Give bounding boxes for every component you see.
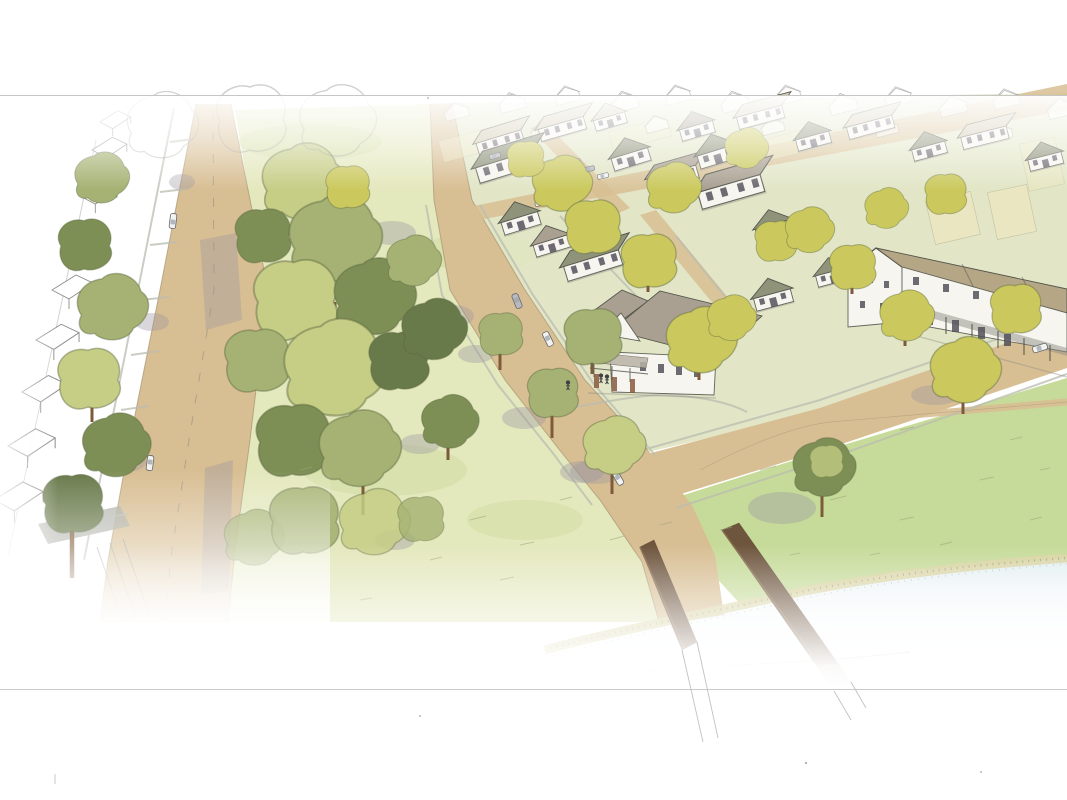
illustration (0, 0, 1067, 800)
bottom-fade (0, 545, 1067, 690)
top-fade (0, 95, 1067, 190)
watercolor-rendering-canvas (0, 0, 1067, 800)
car (169, 213, 177, 229)
left-fade (0, 95, 58, 655)
